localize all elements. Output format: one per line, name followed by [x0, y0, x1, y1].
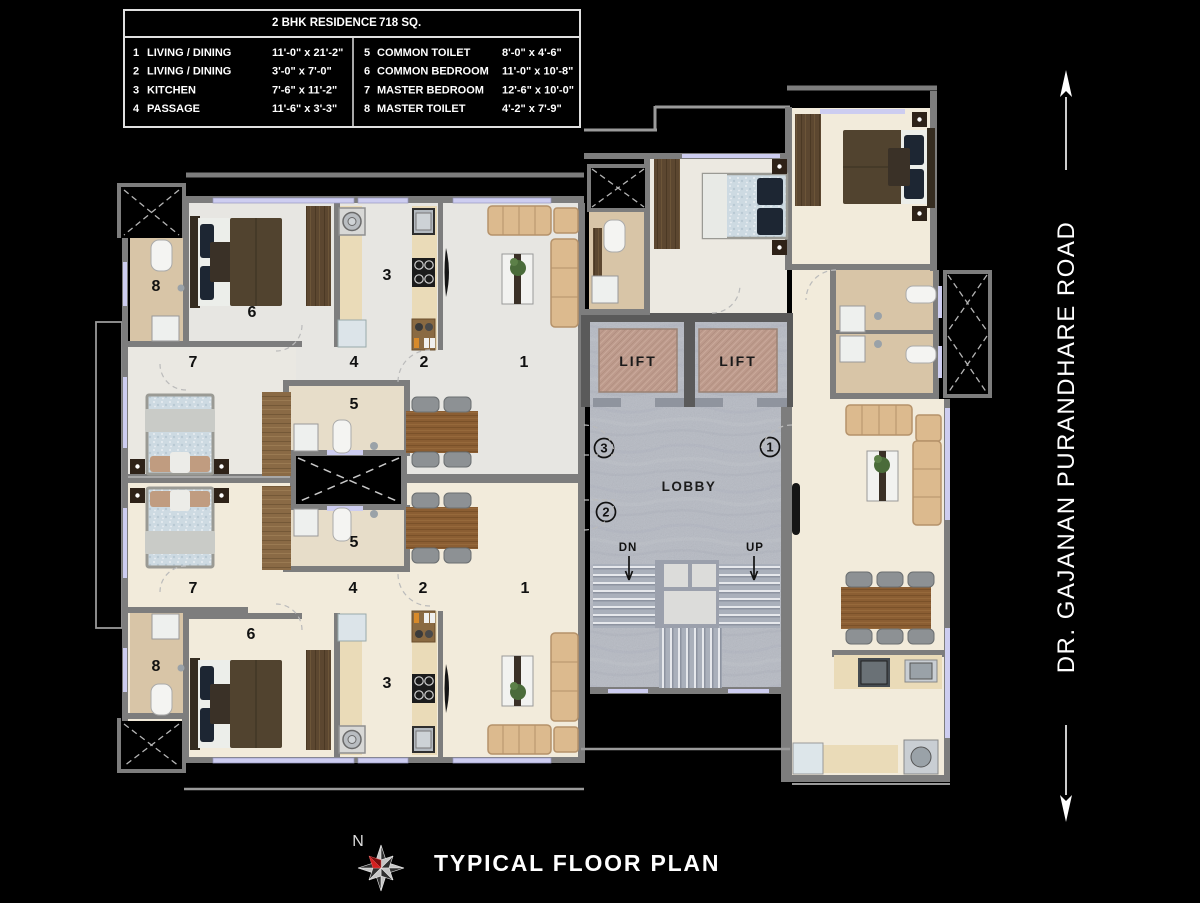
svg-text:12'-6" x 10'-0": 12'-6" x 10'-0": [502, 84, 574, 96]
svg-text:LIVING / DINING: LIVING / DINING: [147, 66, 231, 78]
svg-text:11'-6" x 3'-3": 11'-6" x 3'-3": [272, 103, 337, 115]
svg-text:3: 3: [383, 267, 392, 284]
svg-text:8: 8: [152, 278, 161, 295]
svg-text:MASTER TOILET: MASTER TOILET: [377, 103, 466, 115]
svg-text:4'-2" x 7'-9": 4'-2" x 7'-9": [502, 103, 562, 115]
svg-text:7: 7: [189, 354, 198, 371]
svg-text:718 SQ.: 718 SQ.: [379, 17, 421, 29]
svg-text:8: 8: [364, 103, 370, 115]
svg-text:3: 3: [600, 441, 607, 456]
svg-text:2: 2: [133, 66, 139, 78]
svg-text:COMMON TOILET: COMMON TOILET: [377, 47, 471, 59]
svg-text:5: 5: [364, 47, 370, 59]
svg-text:1: 1: [520, 354, 529, 371]
svg-text:TYPICAL FLOOR PLAN: TYPICAL FLOOR PLAN: [434, 850, 720, 876]
svg-text:5: 5: [350, 396, 359, 413]
svg-text:KITCHEN: KITCHEN: [147, 84, 196, 96]
svg-text:3: 3: [133, 84, 139, 96]
svg-text:6: 6: [248, 304, 257, 321]
svg-text:PASSAGE: PASSAGE: [147, 103, 200, 115]
svg-text:N: N: [352, 833, 364, 850]
svg-text:UP: UP: [746, 542, 764, 554]
svg-text:6: 6: [247, 626, 256, 643]
svg-text:LOBBY: LOBBY: [662, 479, 717, 494]
svg-text:3'-0" x 7'-0": 3'-0" x 7'-0": [272, 66, 332, 78]
svg-text:4: 4: [350, 354, 359, 371]
svg-text:DR. GAJANAN PURANDHARE ROAD: DR. GAJANAN PURANDHARE ROAD: [1053, 221, 1080, 674]
svg-text:7'-6" x 11'-2": 7'-6" x 11'-2": [272, 84, 337, 96]
svg-text:11'-0" x 21'-2": 11'-0" x 21'-2": [272, 47, 343, 59]
svg-text:8'-0" x 4'-6": 8'-0" x 4'-6": [502, 47, 562, 59]
svg-text:11'-0" x 10'-8": 11'-0" x 10'-8": [502, 66, 573, 78]
svg-text:COMMON BEDROOM: COMMON BEDROOM: [377, 66, 489, 78]
svg-text:LIFT: LIFT: [619, 353, 657, 369]
svg-text:DN: DN: [619, 542, 638, 554]
svg-text:LIVING / DINING: LIVING / DINING: [147, 47, 231, 59]
svg-text:4: 4: [349, 580, 358, 597]
svg-text:2: 2: [420, 354, 429, 371]
svg-text:1: 1: [133, 47, 139, 59]
svg-text:1: 1: [766, 440, 773, 455]
svg-text:8: 8: [152, 658, 161, 675]
svg-text:1: 1: [521, 580, 530, 597]
svg-text:7: 7: [364, 84, 370, 96]
svg-text:4: 4: [133, 103, 140, 115]
svg-text:2: 2: [419, 580, 428, 597]
svg-text:5: 5: [350, 534, 359, 551]
svg-text:7: 7: [189, 580, 198, 597]
svg-text:2 BHK RESIDENCE: 2 BHK RESIDENCE: [272, 17, 377, 29]
svg-text:MASTER BEDROOM: MASTER BEDROOM: [377, 84, 484, 96]
svg-text:LIFT: LIFT: [719, 353, 757, 369]
svg-text:6: 6: [364, 66, 370, 78]
svg-text:3: 3: [383, 675, 392, 692]
